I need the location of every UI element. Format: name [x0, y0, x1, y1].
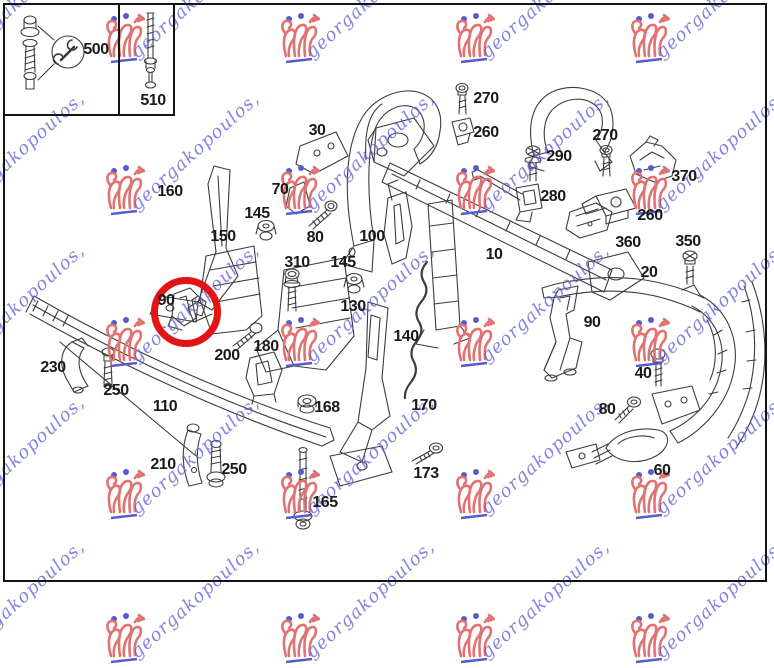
part-40-art [651, 349, 700, 424]
hardware-kit-art [21, 16, 54, 89]
part-100-art [384, 180, 412, 264]
part-70-art [286, 132, 348, 214]
wrench-icon [52, 36, 84, 68]
dealer-logo-icon [455, 612, 495, 668]
bolt-270-left-art [456, 84, 468, 115]
part-130-art [256, 258, 354, 372]
parts-catalog-page: { "watermark": { "text": "georgakopoulos… [0, 0, 774, 589]
part-90-right-art [544, 286, 582, 381]
bolt-80-left-art [309, 201, 337, 229]
nut-168-art [298, 395, 316, 413]
bolt-250-bottom-art [207, 441, 225, 488]
bolt-200-art [233, 323, 262, 349]
bushing-145-left-art [256, 221, 276, 241]
clamp-260-left-art [452, 118, 474, 145]
stud-510-art [145, 13, 157, 88]
part-140-art [330, 302, 392, 486]
bolt-290-art [525, 146, 541, 181]
part-10-art [368, 118, 644, 348]
part-180-art [246, 352, 282, 404]
part-210-art [183, 424, 202, 486]
part-280-art [472, 170, 542, 222]
right-edge-panel-art [728, 282, 765, 448]
bolt-80-right-art [615, 397, 641, 423]
part-360-art [566, 203, 612, 238]
dealer-logo-icon [105, 612, 145, 668]
bolt-165-art [294, 448, 312, 530]
exploded-parts-drawing [0, 0, 774, 589]
dealer-logo-icon [280, 612, 320, 668]
part-30-art [342, 91, 441, 272]
part-20-art [542, 278, 735, 443]
dealer-logo-icon [630, 612, 670, 668]
clamp-260-right-art [582, 189, 636, 224]
highlight-circle-part-90 [151, 277, 221, 347]
part-370-art [630, 136, 676, 182]
bolt-173-art [412, 443, 443, 464]
part-60-art [566, 429, 668, 468]
bolt-310-art [284, 269, 300, 311]
bolt-350-art [683, 251, 697, 284]
